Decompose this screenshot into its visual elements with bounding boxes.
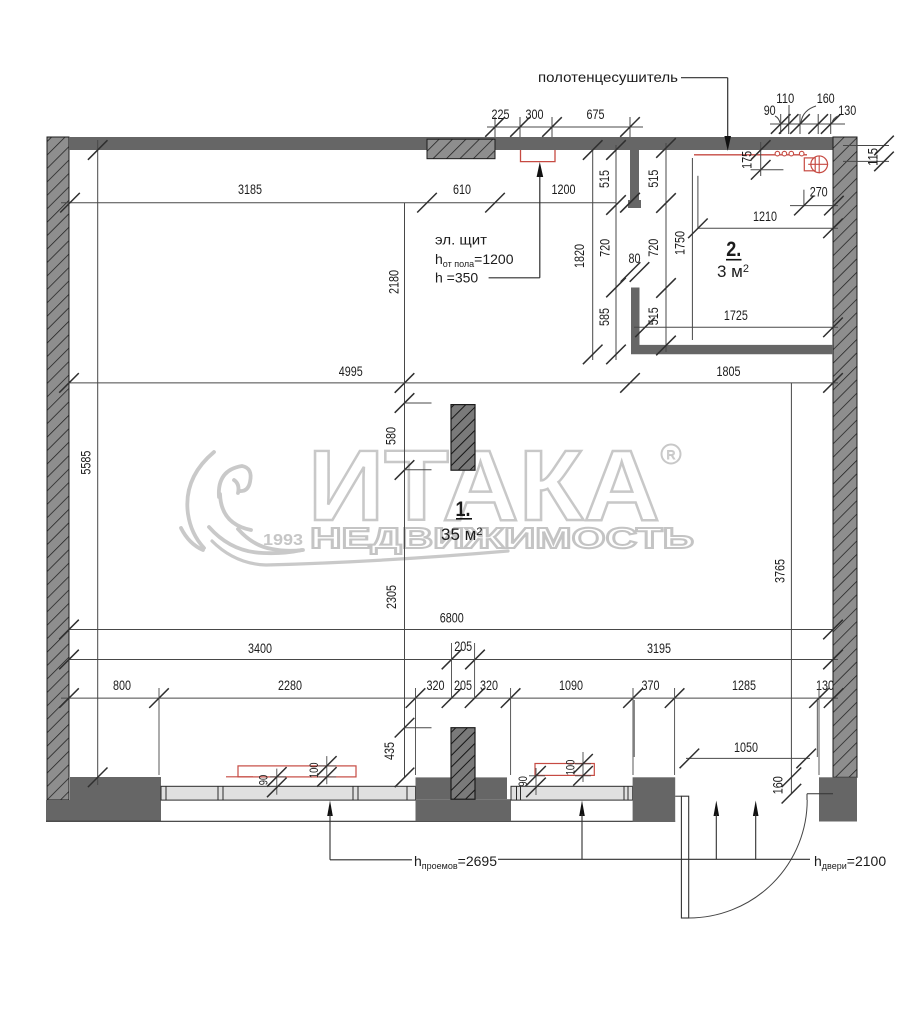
svg-text:1725: 1725 xyxy=(724,308,748,323)
svg-text:675: 675 xyxy=(587,107,605,122)
svg-text:3765: 3765 xyxy=(772,559,787,583)
svg-text:2280: 2280 xyxy=(278,678,302,693)
svg-text:1090: 1090 xyxy=(559,678,583,693)
svg-text:580: 580 xyxy=(383,427,398,445)
svg-text:90: 90 xyxy=(764,103,776,118)
svg-text:3195: 3195 xyxy=(647,641,671,656)
svg-text:800: 800 xyxy=(113,678,131,693)
svg-text:175: 175 xyxy=(739,151,754,169)
svg-text:эл. щит: эл. щит xyxy=(435,232,488,248)
svg-text:300: 300 xyxy=(526,107,544,122)
svg-text:205: 205 xyxy=(454,678,472,693)
svg-text:370: 370 xyxy=(642,678,660,693)
svg-text:115: 115 xyxy=(866,148,881,166)
svg-text:160: 160 xyxy=(771,776,786,794)
svg-text:160: 160 xyxy=(817,91,835,106)
svg-text:1.: 1. xyxy=(456,498,471,521)
svg-text:720: 720 xyxy=(597,239,612,257)
svg-text:225: 225 xyxy=(492,107,510,122)
svg-text:НЕДВИЖИМОСТЬ: НЕДВИЖИМОСТЬ xyxy=(310,523,694,555)
svg-text:585: 585 xyxy=(597,308,612,326)
svg-text:6800: 6800 xyxy=(440,611,464,626)
svg-text:3185: 3185 xyxy=(238,182,262,197)
svg-text:610: 610 xyxy=(453,182,471,197)
svg-text:515: 515 xyxy=(597,170,612,188)
svg-text:100: 100 xyxy=(307,762,321,778)
svg-text:515: 515 xyxy=(646,170,661,188)
svg-text:2305: 2305 xyxy=(384,585,399,609)
svg-text:2.: 2. xyxy=(726,238,741,261)
svg-text:h =350: h =350 xyxy=(435,270,478,286)
svg-text:1820: 1820 xyxy=(572,244,587,268)
svg-text:515: 515 xyxy=(646,307,661,325)
svg-text:205: 205 xyxy=(454,639,472,654)
svg-text:100: 100 xyxy=(563,759,577,775)
svg-text:3400: 3400 xyxy=(248,641,272,656)
svg-text:1050: 1050 xyxy=(734,740,758,755)
svg-text:5585: 5585 xyxy=(79,451,94,475)
svg-text:2180: 2180 xyxy=(386,270,401,294)
svg-text:1200: 1200 xyxy=(552,182,576,197)
svg-text:320: 320 xyxy=(427,678,445,693)
svg-text:90: 90 xyxy=(256,775,270,786)
svg-text:1750: 1750 xyxy=(672,231,687,255)
svg-text:35 м2: 35 м2 xyxy=(441,525,482,544)
svg-text:1210: 1210 xyxy=(753,209,777,224)
svg-text:полотенцесушитель: полотенцесушитель xyxy=(538,69,678,85)
svg-text:R: R xyxy=(667,448,676,462)
svg-text:435: 435 xyxy=(382,742,397,760)
svg-text:1285: 1285 xyxy=(732,678,756,693)
svg-text:4995: 4995 xyxy=(339,364,363,379)
svg-text:1805: 1805 xyxy=(717,364,741,379)
svg-text:270: 270 xyxy=(810,185,828,200)
svg-text:110: 110 xyxy=(776,91,794,106)
svg-text:1993: 1993 xyxy=(263,532,303,549)
svg-text:320: 320 xyxy=(480,678,498,693)
svg-text:130: 130 xyxy=(838,103,856,118)
svg-text:720: 720 xyxy=(646,239,661,257)
